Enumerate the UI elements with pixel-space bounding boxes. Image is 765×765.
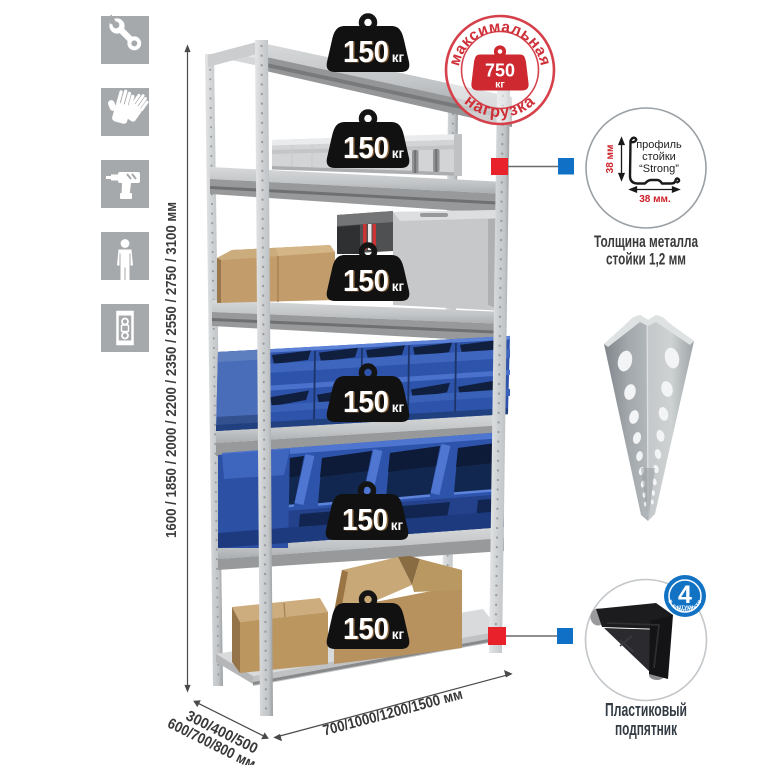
svg-text:38 мм.: 38 мм. [639,194,671,205]
svg-text:стойки 1,2 мм: стойки 1,2 мм [606,251,686,269]
svg-text:Толщина металла: Толщина металла [594,233,699,251]
svg-text:700/1000/1200/1500 мм: 700/1000/1200/1500 мм [321,686,464,740]
svg-text:750: 750 [485,61,515,81]
svg-text:Пластиковый: Пластиковый [605,700,687,720]
svg-text:подпятник: подпятник [615,719,678,739]
svg-text:стойки: стойки [642,151,676,163]
svg-text:1600 / 1850 / 2000 / 2200 / 23: 1600 / 1850 / 2000 / 2200 / 2350 / 2550 … [164,202,180,538]
svg-text:штуки: штуки [677,605,694,611]
svg-text:38 мм: 38 мм [605,145,616,174]
svg-text:“Strong”: “Strong” [639,163,679,175]
svg-text:кг: кг [495,79,505,91]
svg-text:профиль: профиль [636,139,682,151]
